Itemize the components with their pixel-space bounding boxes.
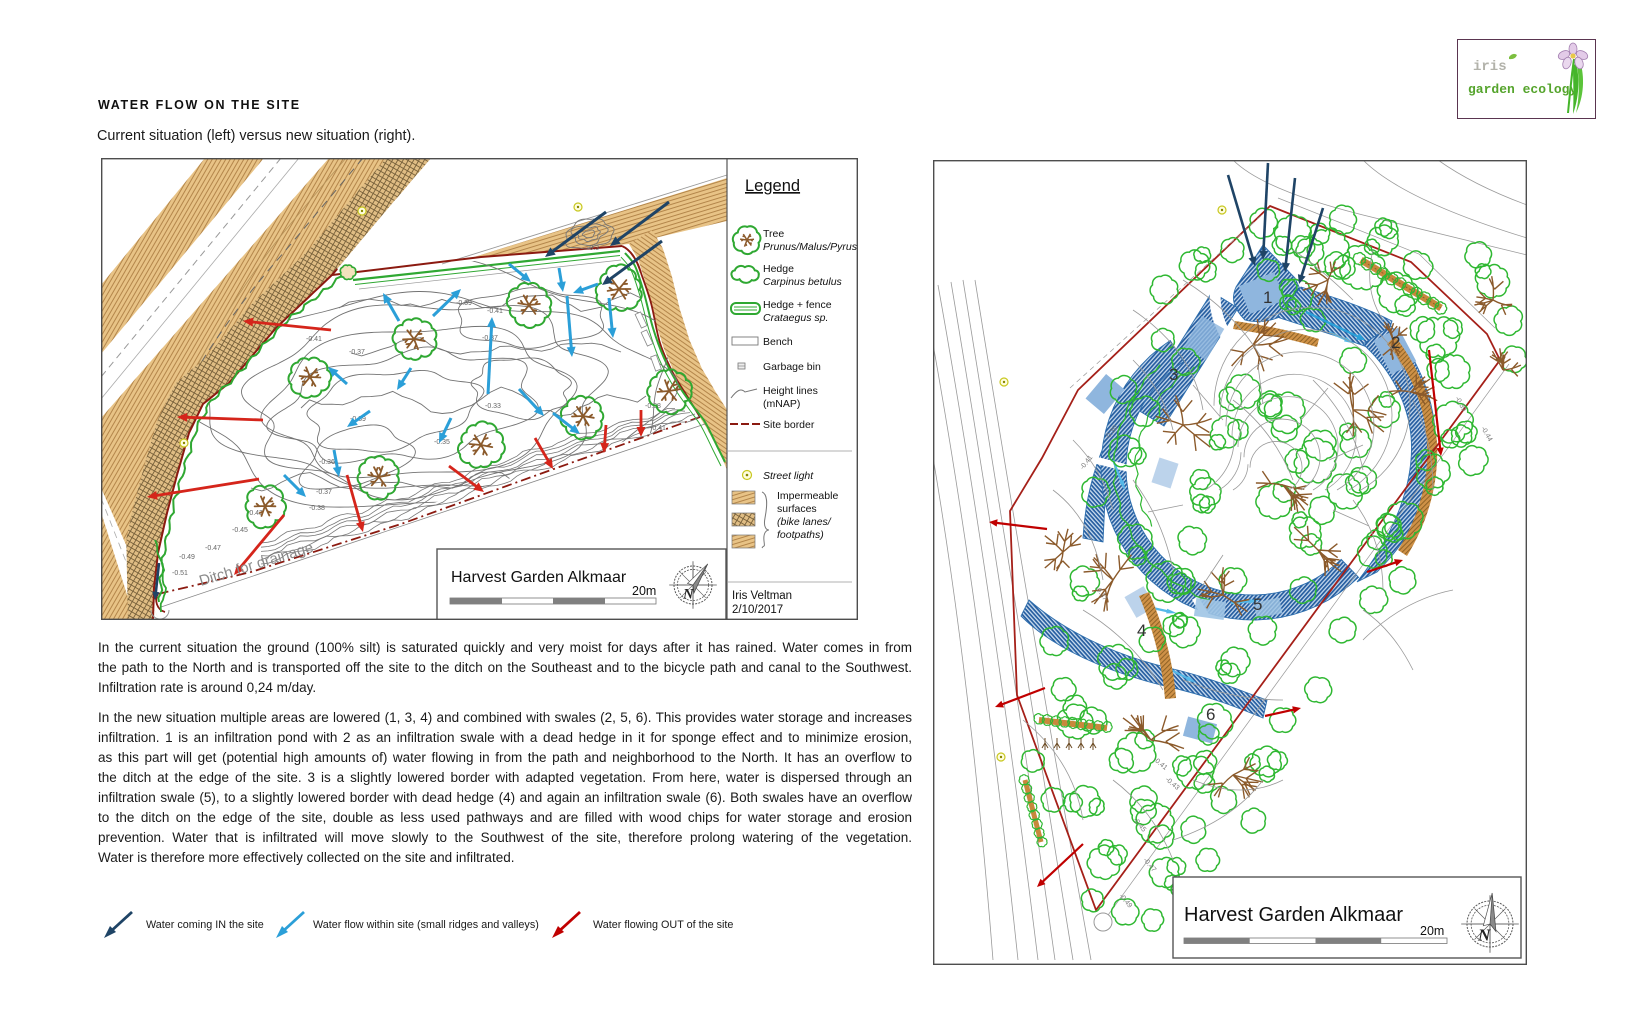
svg-text:garden ecology: garden ecology — [1468, 82, 1577, 97]
svg-text:iris: iris — [1473, 59, 1507, 75]
svg-text:Garbage bin: Garbage bin — [763, 361, 821, 373]
svg-text:-0.37: -0.37 — [316, 489, 332, 496]
svg-text:Harvest Garden Alkmaar: Harvest Garden Alkmaar — [1184, 904, 1403, 926]
svg-text:-0.41: -0.41 — [650, 425, 666, 432]
svg-text:(mNAP): (mNAP) — [763, 398, 800, 410]
svg-text:2/10/2017: 2/10/2017 — [732, 604, 783, 616]
svg-text:-0.47: -0.47 — [205, 545, 221, 552]
svg-text:-0.41: -0.41 — [487, 308, 503, 315]
svg-text:-0.41: -0.41 — [306, 336, 322, 343]
svg-text:surfaces: surfaces — [777, 503, 817, 515]
svg-text:Hedge: Hedge — [763, 263, 794, 275]
svg-text:-0.39: -0.39 — [456, 300, 472, 307]
svg-text:Impermeable: Impermeable — [777, 490, 838, 502]
svg-text:6: 6 — [1206, 705, 1215, 724]
svg-text:1: 1 — [1263, 288, 1272, 307]
svg-text:-0.45: -0.45 — [232, 527, 248, 534]
svg-text:Prunus/Malus/Pyrus: Prunus/Malus/Pyrus — [763, 241, 858, 253]
svg-text:Carpinus betulus: Carpinus betulus — [763, 276, 843, 288]
svg-text:Bench: Bench — [763, 336, 793, 348]
svg-text:-0.33: -0.33 — [485, 403, 501, 410]
svg-text:Tree: Tree — [763, 228, 784, 240]
svg-text:N: N — [682, 587, 694, 603]
svg-text:-0.51: -0.51 — [172, 570, 188, 577]
svg-text:Height lines: Height lines — [763, 385, 818, 397]
svg-text:footpaths): footpaths) — [777, 529, 824, 541]
svg-text:Crataegus sp.: Crataegus sp. — [763, 312, 828, 324]
svg-text:Legend: Legend — [745, 177, 800, 195]
svg-text:4: 4 — [1137, 621, 1146, 640]
svg-text:N: N — [1477, 926, 1491, 945]
svg-text:20m: 20m — [1420, 924, 1444, 938]
svg-text:-0.49: -0.49 — [179, 554, 195, 561]
svg-text:2: 2 — [1391, 333, 1400, 352]
svg-text:Harvest Garden Alkmaar: Harvest Garden Alkmaar — [451, 569, 627, 586]
svg-text:-0.38: -0.38 — [309, 505, 325, 512]
svg-text:Street light: Street light — [763, 470, 814, 482]
svg-text:5: 5 — [1253, 595, 1262, 614]
svg-text:Site border: Site border — [763, 419, 815, 431]
svg-text:(bike lanes/: (bike lanes/ — [777, 516, 832, 528]
svg-text:Iris Veltman: Iris Veltman — [732, 590, 792, 602]
svg-text:-0.36: -0.36 — [319, 459, 335, 466]
svg-text:3: 3 — [1169, 365, 1178, 384]
svg-text:-0.37: -0.37 — [349, 349, 365, 356]
svg-text:-0.3: -0.3 — [587, 245, 599, 252]
svg-text:20m: 20m — [632, 584, 656, 598]
svg-text:Hedge + fence: Hedge + fence — [763, 299, 832, 311]
